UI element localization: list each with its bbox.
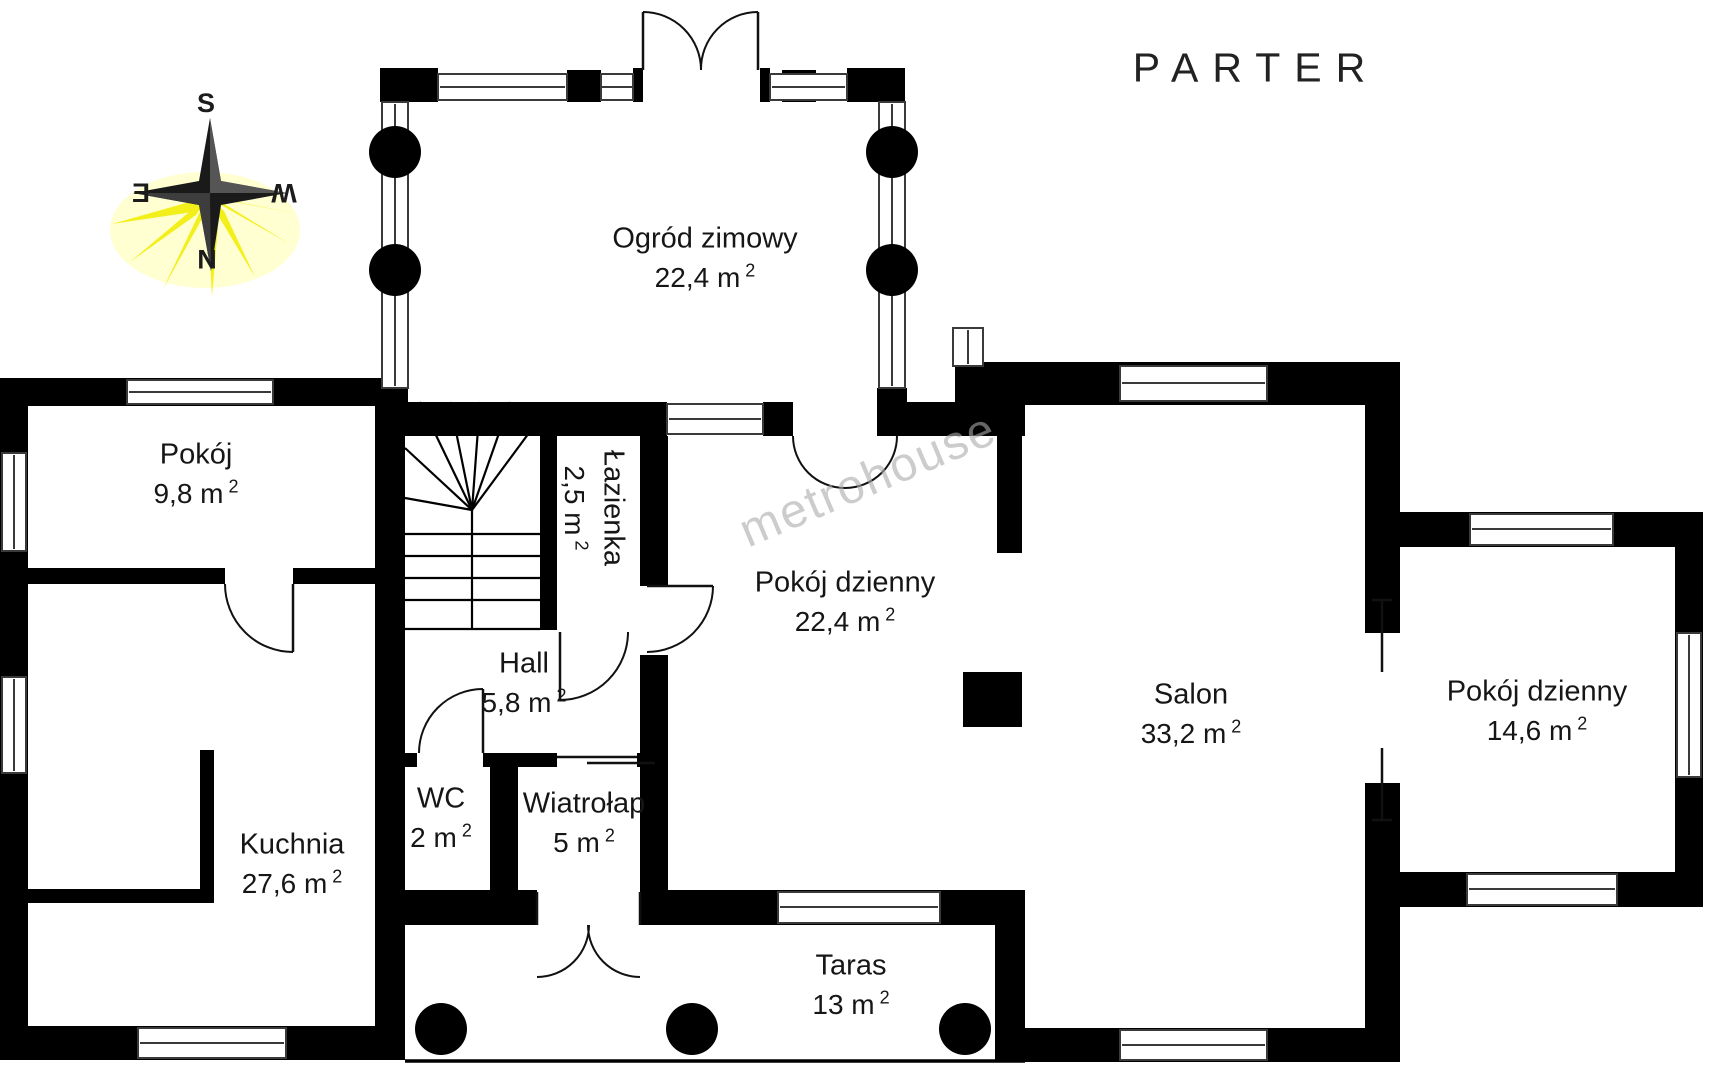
room-area-value: 13 m (812, 989, 874, 1020)
compass-letter-north: N (197, 244, 217, 274)
room-label-wc: WC 2 m2 (410, 780, 472, 857)
room-label-wiatrolap: Wiatrołap 5 m2 (523, 785, 646, 862)
room-area: 27,6 m2 (240, 865, 345, 903)
window (2, 677, 26, 773)
door-hall-to-living (647, 586, 713, 652)
room-name: Wiatrołap (523, 785, 646, 824)
room-area: 14,6 m2 (1447, 712, 1628, 750)
window (138, 1028, 286, 1058)
room-area-sup: 2 (462, 821, 472, 841)
room-area: 5,8 m2 (481, 684, 566, 722)
room-label-pokoj-dzienny-2: Pokój dzienny 14,6 m2 (1447, 673, 1628, 750)
terrace-column (939, 1003, 991, 1055)
room-name: Kuchnia (240, 826, 345, 865)
room-area-value: 22,4 m (795, 606, 881, 637)
window (2, 453, 26, 551)
room-area-value: 14,6 m (1487, 715, 1573, 746)
room-area: 33,2 m2 (1141, 715, 1242, 753)
room-area: 5 m2 (523, 824, 646, 862)
terrace-column (415, 1003, 467, 1055)
room-name: Ogród zimowy (612, 220, 797, 259)
room-name: Salon (1141, 676, 1242, 715)
room-name: Pokój (153, 436, 238, 475)
window (953, 328, 983, 366)
room-area-sup: 2 (332, 867, 342, 887)
window (1120, 366, 1267, 401)
room-area-sup: 2 (880, 988, 890, 1008)
room-area-sup: 2 (1577, 714, 1587, 734)
room-area-sup: 2 (229, 477, 239, 497)
terrace (405, 1003, 1025, 1061)
room-label-taras: Taras 13 m2 (812, 947, 889, 1024)
room-area-sup: 2 (571, 541, 591, 551)
room-name: Pokój dzienny (755, 564, 936, 603)
room-area: 22,4 m2 (612, 259, 797, 297)
door-wiatrolap-to-taras (537, 892, 640, 977)
room-area-sup: 2 (557, 686, 567, 706)
room-label-salon: Salon 33,2 m2 (1141, 676, 1242, 753)
room-label-kuchnia: Kuchnia 27,6 m2 (240, 826, 345, 903)
compass-letter-west: W (271, 178, 297, 208)
room-label-pokoj-dzienny: Pokój dzienny 22,4 m2 (755, 564, 936, 641)
room-area-value: 5 m (553, 827, 600, 858)
room-area-value: 2 m (410, 822, 457, 853)
room-label-lazienka: Łazienka 2,5 m2 (556, 450, 633, 566)
room-area: 22,4 m2 (755, 603, 936, 641)
window (1677, 633, 1701, 777)
room-name: Hall (481, 645, 566, 684)
room-label-pokoj: Pokój 9,8 m2 (153, 436, 238, 513)
window (1120, 1030, 1267, 1060)
compass-letter-east: E (132, 178, 150, 208)
floor-plan-drawing: S E W N (0, 0, 1711, 1080)
window (127, 380, 273, 404)
room-label-hall: Hall 5,8 m2 (481, 645, 566, 722)
room-label-ogrod-zimowy: Ogród zimowy 22,4 m2 (612, 220, 797, 297)
window (1470, 514, 1613, 545)
door-conservatory-entry (643, 12, 758, 70)
room-area-sup: 2 (745, 261, 755, 281)
room-name: Taras (812, 947, 889, 986)
room-area: 2,5 m2 (556, 450, 594, 566)
room-name: WC (410, 780, 472, 819)
room-area-sup: 2 (605, 826, 615, 846)
room-name: Łazienka (593, 450, 632, 566)
room-name: Pokój dzienny (1447, 673, 1628, 712)
room-area-value: 9,8 m (153, 478, 223, 509)
page-title: PARTER (1133, 45, 1380, 92)
window (667, 404, 763, 434)
floorplan-page: S E W N PARTER metrohouse Ogród zimowy 2… (0, 0, 1711, 1080)
compass-letter-south: S (197, 88, 215, 118)
room-area: 13 m2 (812, 986, 889, 1024)
door-lazienka (560, 632, 628, 700)
room-area: 9,8 m2 (153, 475, 238, 513)
room-area-sup: 2 (885, 605, 895, 625)
room-area: 2 m2 (410, 819, 472, 857)
room-area-value: 2,5 m (559, 465, 590, 535)
door-pokoj-to-kuchnia (225, 584, 293, 652)
terrace-column (666, 1003, 718, 1055)
compass-rose: S E W N (110, 88, 300, 296)
window (778, 892, 940, 923)
room-area-sup: 2 (1231, 717, 1241, 737)
window (1467, 874, 1617, 905)
room-area-value: 22,4 m (655, 262, 741, 293)
room-area-value: 33,2 m (1141, 718, 1227, 749)
stairs (405, 402, 540, 629)
door-wc (419, 689, 483, 753)
room-area-value: 27,6 m (242, 868, 328, 899)
room-area-value: 5,8 m (481, 687, 551, 718)
